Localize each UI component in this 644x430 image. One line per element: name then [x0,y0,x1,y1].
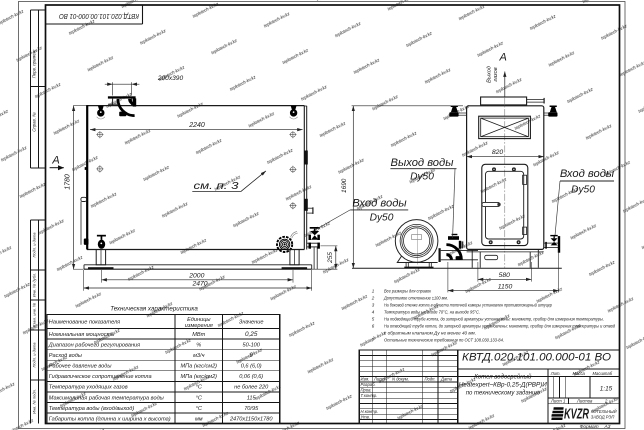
svg-text:Н.контр.: Н.контр. [361,409,379,414]
svg-text:Dy50: Dy50 [370,212,394,223]
svg-text:КВТД.020.101.00.000-01 ВО: КВТД.020.101.00.000-01 ВО [462,351,611,363]
svg-text:Температура воды на входе 70°: Температура воды на входе 70°С, на выход… [384,309,480,314]
svg-text:0,06 (0,6): 0,06 (0,6) [239,374,263,380]
svg-text:Лист: Лист [373,377,385,382]
svg-text:Перв. примен.: Перв. примен. [32,50,37,79]
svg-text:КВТД.020.101.00.000-01 ВО: КВТД.020.101.00.000-01 ВО [59,12,139,21]
svg-text:50-100: 50-100 [242,342,260,348]
svg-text:Инв. № подл.: Инв. № подл. [32,389,37,414]
svg-text:мм: мм [195,416,203,422]
svg-text:Лист: Лист [550,399,562,404]
svg-text:Техническая характеристика: Техническая характеристика [110,305,198,312]
svg-text:1690: 1690 [341,178,348,193]
svg-text:измерения: измерения [185,323,213,329]
svg-text:Температура уходящих газов: Температура уходящих газов [49,385,128,391]
svg-text:Dy50: Dy50 [410,171,434,182]
svg-text:Формат: Формат [580,424,599,430]
svg-text:Максимальная рабочая температу: Максимальная рабочая температура воды [49,395,164,401]
svg-text:Рабочее давление воды: Рабочее давление воды [49,364,112,370]
svg-text:ЗАВОД РЭП: ЗАВОД РЭП [591,414,615,419]
svg-text:°С: °С [196,395,203,401]
svg-text:Расход воды: Расход воды [49,353,82,359]
svg-text:Выход: Выход [487,66,493,83]
svg-text:Все размеры для справок: Все размеры для справок [384,288,432,293]
svg-text:Допустимое отклонение ±100 мм: Допустимое отклонение ±100 мм. [383,295,448,300]
svg-text:Инв. № дубл.: Инв. № дубл. [32,273,37,298]
svg-text:A: A [51,155,59,167]
svg-text:с обратным клапаном Ду не мен: с обратным клапаном Ду не менее 40 мм. [384,331,476,336]
svg-text:Диапазон рабочего регулировани: Диапазон рабочего регулирования [48,342,140,348]
svg-text:газов: газов [493,67,499,81]
svg-text:Котел водогрейный: Котел водогрейный [474,374,532,381]
svg-text:МВт: МВт [192,332,205,338]
svg-text:Значение: Значение [239,320,264,326]
svg-text:9: 9 [249,352,253,359]
svg-text:70/95: 70/95 [244,406,259,412]
svg-text:580: 580 [499,272,511,279]
svg-text:°С: °С [196,385,203,391]
svg-text:Масштаб: Масштаб [593,371,613,376]
svg-text:Подп. и дата: Подп. и дата [32,232,37,258]
svg-text:1150: 1150 [498,283,513,290]
svg-text:Температура воды (вход/выход): Температура воды (вход/выход) [49,406,135,412]
svg-text:Heatexpert–КВр-0,25-Д(РВР)И: Heatexpert–КВр-0,25-Д(РВР)И [459,383,548,389]
svg-text:2: 2 [371,295,375,300]
svg-text:Т.контр.: Т.контр. [361,393,378,398]
svg-text:На подводящей трубе котла, до: На подводящей трубе котла, до запорной а… [384,316,604,322]
svg-text:2240: 2240 [188,122,205,129]
svg-text:A: A [499,52,507,64]
svg-text:На отводящей трубе котла, до з: На отводящей трубе котла, до запорной ар… [384,323,615,329]
svg-text:не более 220: не более 220 [234,385,269,391]
svg-text:Единицы: Единицы [187,317,210,323]
svg-text:Габариты котла (длинна х ширин: Габариты котла (длинна х ширина х высота… [49,416,171,422]
svg-text:Справ. №: Справ. № [32,112,37,132]
svg-text:см. п. 3: см. п. 3 [194,181,240,192]
svg-text:2000: 2000 [188,273,204,280]
svg-text:0,25: 0,25 [245,331,258,338]
svg-text:Дата: Дата [440,377,453,382]
svg-text:Масса: Масса [573,371,586,376]
svg-text:Подп. и дата: Подп. и дата [32,342,37,368]
svg-text:МПа (кгс/см2): МПа (кгс/см2) [181,364,218,370]
svg-text:Наименование показателя: Наименование показателя [49,320,120,326]
svg-text:Гидравлическое сопротивление к: Гидравлическое сопротивление котла [49,374,152,380]
svg-text:255: 255 [327,252,334,264]
svg-text:А3: А3 [604,424,611,430]
svg-text:Разраб.: Разраб. [361,382,376,387]
svg-text:1: 1 [563,399,565,404]
svg-text:КОТЕЛЬНЫЙ: КОТЕЛЬНЫЙ [591,409,617,414]
svg-text:Лит.: Лит. [550,371,561,376]
svg-text:Номинальная мощность: Номинальная мощность [49,332,114,338]
svg-text:по техническому заданию: по техническому заданию [466,390,541,396]
svg-text:Взам. инв. №: Взам. инв. № [32,302,37,327]
svg-text:0,6 (6,0): 0,6 (6,0) [241,364,262,370]
svg-text:°С: °С [196,406,203,412]
svg-text:Листов: Листов [576,399,593,404]
svg-text:м3/ч: м3/ч [193,353,204,359]
svg-text:200х390: 200х390 [157,75,184,82]
svg-text:Dy50: Dy50 [571,184,595,195]
svg-text:Пров.: Пров. [361,388,372,393]
svg-text:На боковой стенке котла в обла: На боковой стенке котла в области топочн… [384,301,552,307]
svg-text:Утв.: Утв. [361,414,371,419]
svg-text:Подп.: Подп. [425,377,436,382]
svg-text:N докум.: N докум. [392,377,409,382]
svg-text:1780: 1780 [64,174,71,190]
svg-text:115: 115 [247,395,257,401]
svg-text:2470: 2470 [191,280,207,287]
svg-text:2470х1150х1780: 2470х1150х1780 [229,416,273,422]
svg-text:Остальные технические требован: Остальные технические требования по ОСТ … [384,338,504,343]
svg-text:Вход воды: Вход воды [352,197,407,209]
svg-text:KVZR: KVZR [564,407,589,423]
svg-text:Вход воды: Вход воды [560,168,615,180]
svg-text:1:15: 1:15 [600,385,613,392]
svg-text:820: 820 [492,149,504,156]
svg-text:Выход воды: Выход воды [391,157,455,169]
svg-text:МПа (кгс/см2): МПа (кгс/см2) [181,374,218,380]
svg-text:Изм.: Изм. [361,377,370,382]
svg-text:%: % [196,342,201,348]
